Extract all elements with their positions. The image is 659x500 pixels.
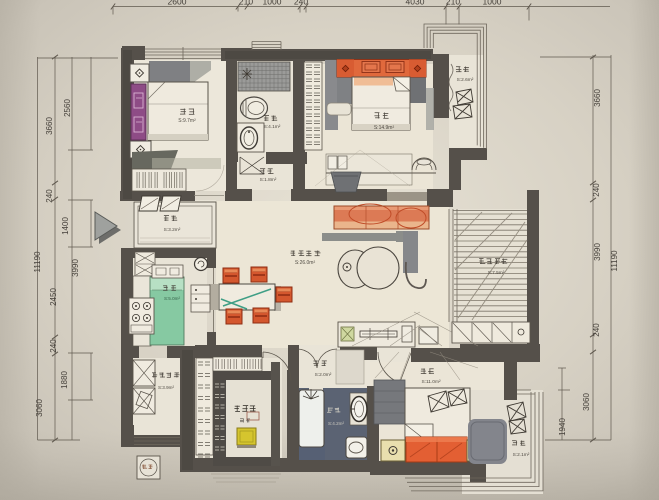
svg-text:240: 240: [49, 339, 58, 353]
svg-text:1000: 1000: [483, 0, 502, 7]
svg-text:S:26.0m²: S:26.0m²: [295, 260, 316, 266]
svg-text:3660: 3660: [593, 89, 602, 107]
svg-text:11190: 11190: [610, 250, 619, 272]
svg-text:1400: 1400: [61, 217, 70, 235]
svg-text:240: 240: [592, 183, 601, 197]
svg-text:1000: 1000: [263, 0, 282, 7]
svg-text:S:2.1m²: S:2.1m²: [513, 452, 530, 458]
svg-text:S:7.5m²: S:7.5m²: [488, 270, 505, 276]
svg-text:S:1.8m²: S:1.8m²: [260, 177, 277, 183]
svg-text:S:14.9m²: S:14.9m²: [374, 125, 395, 131]
svg-text:4030: 4030: [406, 0, 425, 7]
svg-text:1880: 1880: [60, 371, 69, 389]
svg-text:3060: 3060: [582, 393, 591, 411]
svg-text:1940: 1940: [558, 418, 567, 436]
svg-text:S:4.2m²: S:4.2m²: [328, 421, 345, 426]
svg-text:S:3.9m²: S:3.9m²: [158, 385, 175, 390]
svg-text:240: 240: [45, 189, 54, 203]
svg-text:2450: 2450: [49, 288, 58, 306]
svg-text:11190: 11190: [33, 251, 42, 273]
svg-text:S:5.0m²: S:5.0m²: [164, 296, 181, 301]
svg-text:S:11.0m²: S:11.0m²: [421, 379, 441, 385]
svg-text:2600: 2600: [168, 0, 187, 7]
svg-text:S:4.1m²: S:4.1m²: [264, 124, 281, 130]
svg-text:S:2.6m²: S:2.6m²: [457, 77, 474, 83]
svg-text:S:2.0m²: S:2.0m²: [315, 372, 332, 378]
svg-text:3060: 3060: [35, 399, 44, 417]
svg-text:3990: 3990: [71, 259, 80, 277]
svg-text:240: 240: [592, 323, 601, 337]
svg-text:210: 210: [446, 0, 460, 7]
svg-text:3660: 3660: [45, 117, 54, 135]
svg-text:210: 210: [239, 0, 253, 7]
svg-text:3990: 3990: [593, 243, 602, 261]
svg-text:S:9.7m²: S:9.7m²: [178, 118, 196, 124]
svg-text:240: 240: [294, 0, 308, 7]
svg-text:S:3.2m²: S:3.2m²: [164, 227, 181, 233]
svg-text:2560: 2560: [63, 99, 72, 117]
